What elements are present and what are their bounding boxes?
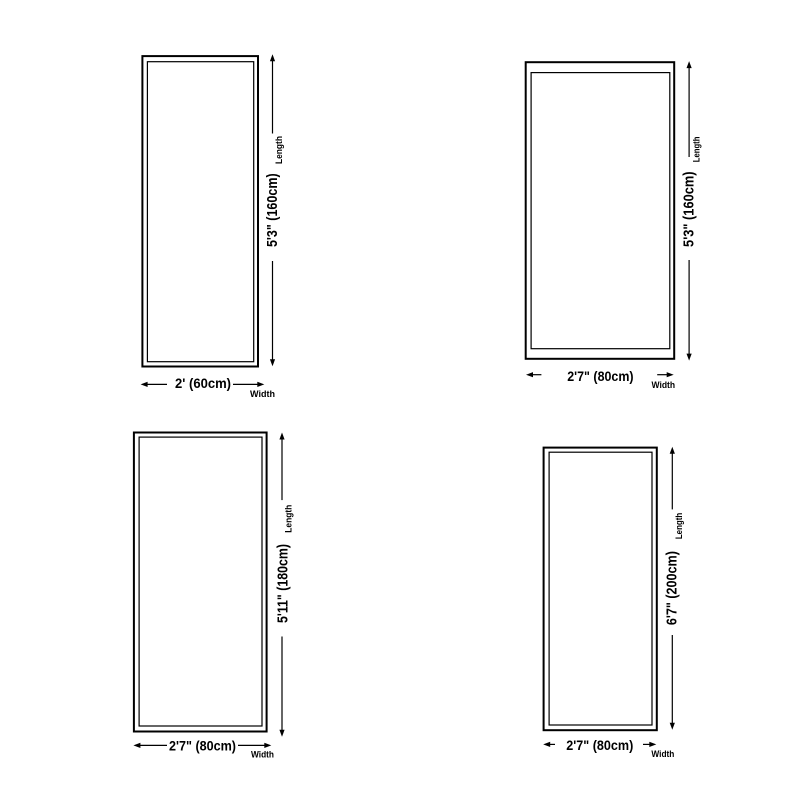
svg-text:Width: Width: [251, 749, 274, 760]
svg-text:5'3" (160cm): 5'3" (160cm): [682, 171, 698, 247]
svg-text:Length: Length: [274, 136, 285, 164]
svg-text:2'7" (80cm): 2'7" (80cm): [169, 738, 236, 754]
svg-text:Length: Length: [691, 136, 702, 162]
svg-text:2' (60cm): 2' (60cm): [175, 375, 231, 391]
svg-text:Width: Width: [652, 380, 676, 391]
svg-text:Width: Width: [651, 749, 674, 760]
svg-text:Length: Length: [284, 505, 295, 533]
svg-text:Length: Length: [674, 513, 685, 539]
svg-text:2'7" (80cm): 2'7" (80cm): [567, 368, 633, 384]
svg-text:Width: Width: [250, 389, 275, 400]
svg-text:5'11" (180cm): 5'11" (180cm): [276, 544, 292, 623]
svg-text:6'7" (200cm): 6'7" (200cm): [665, 551, 681, 625]
svg-text:2'7" (80cm): 2'7" (80cm): [566, 737, 633, 753]
svg-text:5'3" (160cm): 5'3" (160cm): [265, 173, 281, 247]
